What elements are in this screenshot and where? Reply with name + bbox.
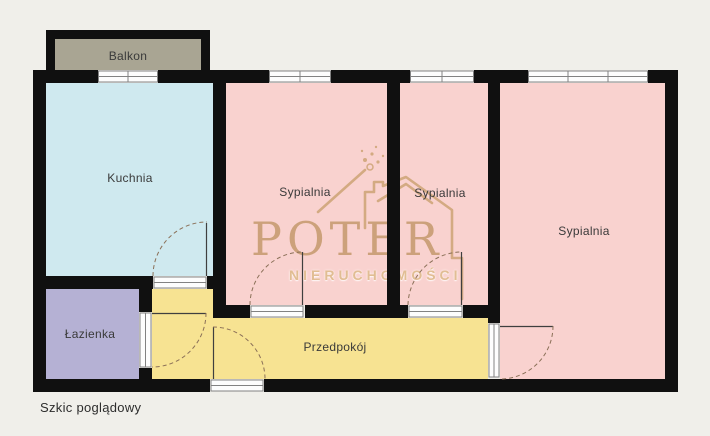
door-sypialnia-3 — [489, 324, 499, 377]
room-label-balkon: Balkon — [109, 49, 148, 63]
door-sypialnia-1 — [251, 306, 303, 317]
door-entry — [211, 380, 263, 391]
room-label-kuchnia: Kuchnia — [107, 171, 152, 185]
window-sypialnia-3 — [529, 71, 648, 82]
room-label-przedpokoj: Przedpokój — [303, 340, 366, 354]
room-label-sypialnia-1: Sypialnia — [279, 185, 330, 199]
room-label-lazienka: Łazienka — [65, 327, 115, 341]
door-kuchnia — [154, 277, 206, 288]
window-sypialnia-2 — [411, 71, 474, 82]
door-lazienka — [140, 313, 151, 367]
door-thresholds — [140, 277, 499, 391]
room-label-sypialnia-2: Sypialnia — [414, 186, 465, 200]
walls-and-openings — [0, 0, 710, 436]
window-kuchnia — [99, 71, 158, 82]
window-sypialnia-1 — [270, 71, 331, 82]
room-label-sypialnia-3: Sypialnia — [558, 224, 609, 238]
floor-plan: POTER NIERUCHOMOŚCI — [0, 0, 710, 436]
door-sypialnia-2 — [409, 306, 462, 317]
sketch-disclaimer: Szkic poglądowy — [40, 400, 141, 415]
